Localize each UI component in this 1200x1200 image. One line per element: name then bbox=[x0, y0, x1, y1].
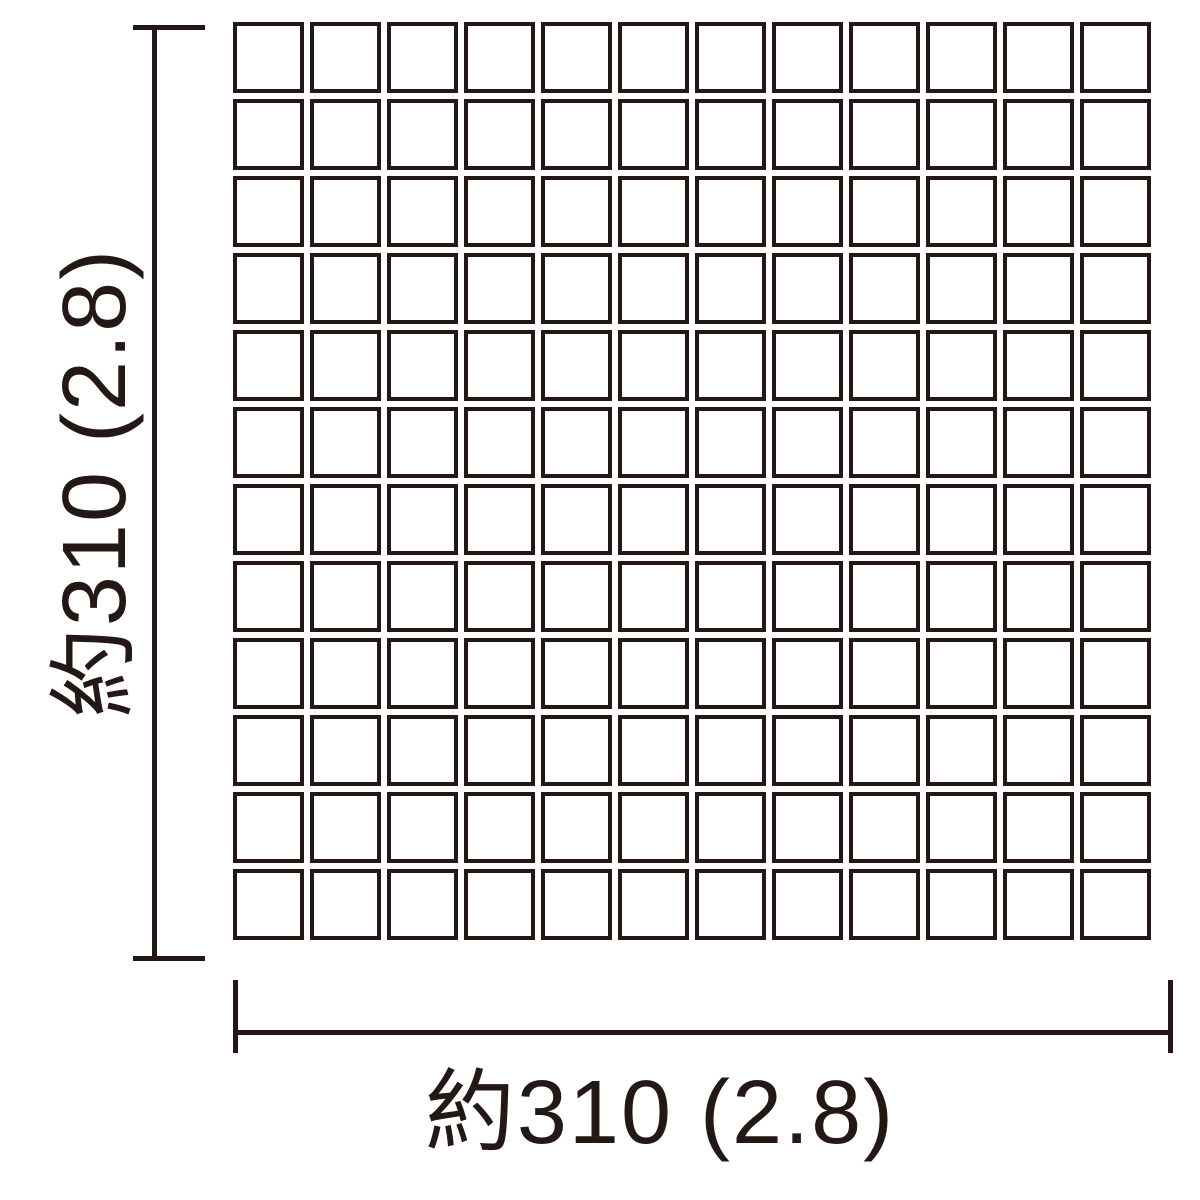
tile-cell bbox=[926, 715, 997, 786]
tile-grid bbox=[233, 22, 1151, 940]
tile-cell bbox=[1003, 792, 1074, 863]
tile-cell bbox=[926, 253, 997, 324]
tile-cell bbox=[772, 561, 843, 632]
tile-cell bbox=[464, 792, 535, 863]
tile-cell bbox=[618, 176, 689, 247]
tile-cell bbox=[926, 869, 997, 940]
tile-cell bbox=[926, 792, 997, 863]
tile-cell bbox=[618, 484, 689, 555]
tile-cell bbox=[387, 99, 458, 170]
tile-cell bbox=[1080, 715, 1151, 786]
tile-cell bbox=[926, 484, 997, 555]
tile-cell bbox=[541, 561, 612, 632]
tile-cell bbox=[849, 792, 920, 863]
tile-cell bbox=[618, 22, 689, 93]
tile-cell bbox=[310, 792, 381, 863]
tile-cell bbox=[618, 792, 689, 863]
tile-cell bbox=[1080, 792, 1151, 863]
tile-cell bbox=[541, 407, 612, 478]
tile-cell bbox=[464, 330, 535, 401]
tile-cell bbox=[310, 22, 381, 93]
tile-cell bbox=[233, 253, 304, 324]
height-dimension-line bbox=[152, 27, 157, 959]
tile-cell bbox=[310, 330, 381, 401]
tile-cell bbox=[541, 638, 612, 709]
tile-cell bbox=[310, 407, 381, 478]
tile-cell bbox=[387, 176, 458, 247]
tile-cell bbox=[387, 715, 458, 786]
width-dimension-line bbox=[233, 1030, 1173, 1035]
tile-cell bbox=[1003, 638, 1074, 709]
tile-cell bbox=[695, 561, 766, 632]
tile-cell bbox=[618, 330, 689, 401]
tile-cell bbox=[233, 792, 304, 863]
tile-cell bbox=[618, 638, 689, 709]
tile-cell bbox=[387, 869, 458, 940]
tile-cell bbox=[233, 869, 304, 940]
tile-cell bbox=[233, 484, 304, 555]
tile-cell bbox=[1003, 22, 1074, 93]
width-dimension-cap-left bbox=[233, 980, 238, 1053]
tile-cell bbox=[1003, 99, 1074, 170]
tile-cell bbox=[695, 869, 766, 940]
tile-cell bbox=[233, 22, 304, 93]
tile-cell bbox=[849, 330, 920, 401]
tile-cell bbox=[1003, 715, 1074, 786]
tile-cell bbox=[310, 638, 381, 709]
tile-cell bbox=[695, 176, 766, 247]
tile-cell bbox=[1080, 22, 1151, 93]
height-dimension-cap-bottom bbox=[133, 956, 205, 961]
tile-cell bbox=[695, 253, 766, 324]
tile-cell bbox=[541, 792, 612, 863]
tile-cell bbox=[464, 869, 535, 940]
tile-cell bbox=[387, 330, 458, 401]
tile-cell bbox=[1080, 330, 1151, 401]
width-dimension-label: 約310 (2.8) bbox=[425, 1068, 895, 1158]
tile-cell bbox=[464, 715, 535, 786]
tile-cell bbox=[1080, 869, 1151, 940]
tile-cell bbox=[695, 407, 766, 478]
tile-cell bbox=[772, 99, 843, 170]
tile-cell bbox=[1080, 99, 1151, 170]
tile-cell bbox=[926, 22, 997, 93]
tile-cell bbox=[310, 869, 381, 940]
tile-cell bbox=[926, 561, 997, 632]
tile-cell bbox=[849, 715, 920, 786]
tile-cell bbox=[233, 638, 304, 709]
tile-cell bbox=[849, 484, 920, 555]
tile-cell bbox=[772, 176, 843, 247]
height-dimension-label: 約310 (2.8) bbox=[50, 248, 140, 718]
tile-cell bbox=[926, 638, 997, 709]
tile-cell bbox=[772, 253, 843, 324]
tile-cell bbox=[849, 22, 920, 93]
tile-cell bbox=[464, 407, 535, 478]
tile-cell bbox=[464, 253, 535, 324]
tile-cell bbox=[926, 407, 997, 478]
tile-cell bbox=[233, 330, 304, 401]
width-dimension-cap-right bbox=[1168, 980, 1173, 1053]
tile-cell bbox=[1003, 561, 1074, 632]
tile-cell bbox=[849, 99, 920, 170]
tile-cell bbox=[1003, 176, 1074, 247]
tile-cell bbox=[464, 99, 535, 170]
tile-cell bbox=[464, 484, 535, 555]
tile-cell bbox=[849, 407, 920, 478]
tile-cell bbox=[310, 99, 381, 170]
tile-cell bbox=[849, 561, 920, 632]
tile-cell bbox=[541, 484, 612, 555]
tile-cell bbox=[387, 792, 458, 863]
tile-cell bbox=[1003, 869, 1074, 940]
tile-cell bbox=[464, 176, 535, 247]
tile-cell bbox=[618, 99, 689, 170]
tile-cell bbox=[387, 407, 458, 478]
tile-cell bbox=[1080, 253, 1151, 324]
tile-cell bbox=[1003, 484, 1074, 555]
tile-cell bbox=[772, 638, 843, 709]
tile-cell bbox=[695, 638, 766, 709]
tile-cell bbox=[618, 869, 689, 940]
tile-cell bbox=[233, 99, 304, 170]
tile-cell bbox=[233, 715, 304, 786]
tile-cell bbox=[310, 176, 381, 247]
tile-cell bbox=[233, 176, 304, 247]
tile-cell bbox=[849, 253, 920, 324]
tile-cell bbox=[1080, 484, 1151, 555]
tile-cell bbox=[695, 715, 766, 786]
tile-cell bbox=[772, 407, 843, 478]
tile-cell bbox=[1080, 638, 1151, 709]
tile-cell bbox=[464, 638, 535, 709]
tile-cell bbox=[464, 561, 535, 632]
tile-cell bbox=[772, 484, 843, 555]
tile-cell bbox=[1080, 407, 1151, 478]
tile-cell bbox=[1003, 330, 1074, 401]
tile-cell bbox=[233, 407, 304, 478]
tile-cell bbox=[618, 561, 689, 632]
tile-cell bbox=[695, 792, 766, 863]
tile-cell bbox=[387, 253, 458, 324]
tile-cell bbox=[541, 99, 612, 170]
tile-cell bbox=[772, 792, 843, 863]
tile-cell bbox=[387, 484, 458, 555]
tile-cell bbox=[464, 22, 535, 93]
tile-cell bbox=[310, 561, 381, 632]
tile-cell bbox=[772, 330, 843, 401]
tile-sheet-dimension-diagram: 約310 (2.8) 約310 (2.8) bbox=[0, 0, 1200, 1200]
tile-cell bbox=[387, 561, 458, 632]
tile-cell bbox=[541, 253, 612, 324]
tile-cell bbox=[695, 484, 766, 555]
tile-cell bbox=[849, 638, 920, 709]
tile-cell bbox=[310, 253, 381, 324]
tile-cell bbox=[926, 330, 997, 401]
tile-cell bbox=[1003, 253, 1074, 324]
tile-cell bbox=[849, 869, 920, 940]
tile-cell bbox=[233, 561, 304, 632]
tile-cell bbox=[695, 22, 766, 93]
tile-cell bbox=[1080, 561, 1151, 632]
tile-cell bbox=[849, 176, 920, 247]
tile-cell bbox=[541, 869, 612, 940]
tile-cell bbox=[1080, 176, 1151, 247]
tile-cell bbox=[387, 22, 458, 93]
tile-cell bbox=[772, 869, 843, 940]
tile-cell bbox=[772, 715, 843, 786]
tile-cell bbox=[618, 407, 689, 478]
height-dimension-cap-top bbox=[133, 25, 205, 30]
tile-cell bbox=[926, 176, 997, 247]
tile-cell bbox=[618, 253, 689, 324]
tile-cell bbox=[541, 715, 612, 786]
tile-cell bbox=[1003, 407, 1074, 478]
tile-cell bbox=[541, 176, 612, 247]
tile-cell bbox=[310, 715, 381, 786]
tile-cell bbox=[310, 484, 381, 555]
tile-cell bbox=[772, 22, 843, 93]
tile-cell bbox=[926, 99, 997, 170]
tile-cell bbox=[387, 638, 458, 709]
tile-cell bbox=[618, 715, 689, 786]
tile-cell bbox=[695, 330, 766, 401]
tile-cell bbox=[541, 330, 612, 401]
tile-cell bbox=[541, 22, 612, 93]
tile-cell bbox=[695, 99, 766, 170]
